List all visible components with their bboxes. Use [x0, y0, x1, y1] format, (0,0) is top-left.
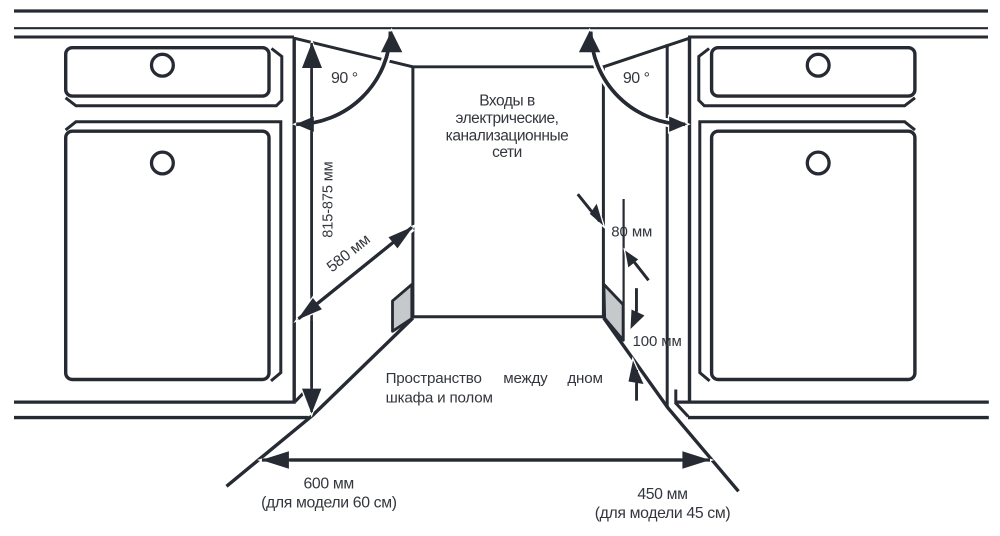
svg-text:450 мм: 450 мм: [637, 486, 687, 503]
svg-text:100 мм: 100 мм: [633, 333, 682, 350]
svg-text:сети: сети: [492, 144, 522, 161]
svg-text:600 мм: 600 мм: [304, 475, 354, 492]
svg-text:815-875 мм: 815-875 мм: [321, 162, 337, 238]
svg-text:дном: дном: [567, 370, 602, 387]
svg-text:Пространство: Пространство: [386, 370, 482, 387]
svg-text:90 °: 90 °: [331, 70, 358, 87]
svg-text:90 °: 90 °: [623, 70, 650, 87]
svg-text:80 мм: 80 мм: [611, 224, 652, 241]
svg-text:Входы в: Входы в: [479, 92, 535, 109]
svg-text:(для модели 60 см): (для модели 60 см): [261, 494, 397, 511]
svg-text:(для модели 45 см): (для модели 45 см): [595, 505, 731, 522]
svg-text:шкафа и полом: шкафа и полом: [386, 389, 493, 406]
svg-text:канализационные: канализационные: [446, 128, 569, 145]
svg-text:между: между: [503, 370, 548, 387]
svg-text:электрические,: электрические,: [455, 110, 558, 127]
